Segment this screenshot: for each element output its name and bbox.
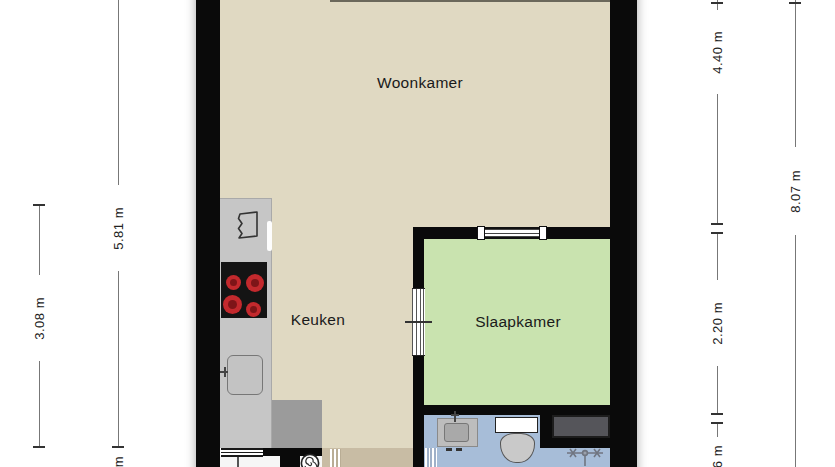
wall-bedroom-bottom	[413, 405, 610, 415]
shower-tap-icon	[563, 446, 607, 467]
floorplan-canvas: Woonkamer Keuken Slaapkamer 5.81 m 3.08 …	[0, 0, 835, 467]
dimension-line-bottom-right	[717, 423, 718, 437]
dimension-tick	[711, 422, 723, 424]
toilet-cistern-icon	[495, 417, 538, 433]
wall-right-outer	[610, 0, 637, 467]
dimension-tick	[711, 413, 723, 415]
window-endcap-icon	[539, 226, 547, 240]
extractor-hood-icon	[227, 209, 261, 241]
dimension-text: 6 m	[710, 445, 725, 467]
washbasin-handle	[446, 448, 452, 451]
dimension-tick	[789, 2, 801, 4]
washbasin-inner-basin	[444, 423, 469, 442]
wall-left-outer	[196, 0, 220, 467]
storage-unit	[552, 415, 610, 438]
dimension-text: 3.08 m	[32, 297, 47, 340]
dimension-tick	[33, 204, 45, 206]
dimension-text: 4.40 m	[710, 31, 725, 74]
wall-wc-stub	[280, 448, 300, 467]
dimension-label-3-08: 3.08 m	[27, 275, 51, 361]
room-label-woonkamer: Woonkamer	[377, 74, 463, 92]
dimension-text: m	[111, 456, 126, 467]
bedroom-top-window-icon	[478, 227, 546, 239]
dimension-label-5-81: 5.81 m	[106, 185, 130, 271]
window-endcap-icon	[477, 226, 485, 240]
dimension-text: 8.07 m	[788, 170, 803, 213]
dimension-label-8-07: 8.07 m	[783, 147, 807, 235]
dimension-tick	[711, 223, 723, 225]
burner-icon	[246, 274, 264, 292]
kitchen-tap-icon-2	[224, 367, 226, 377]
tall-cabinet-block	[272, 400, 322, 448]
drain-spiral-icon	[300, 453, 320, 467]
wc-door-icon	[221, 448, 263, 457]
wc-door-swing-line	[237, 457, 239, 467]
top-cut-edge	[330, 0, 610, 2]
washbasin-handle	[456, 448, 462, 451]
burner-icon	[246, 302, 261, 317]
dimension-text: 5.81 m	[111, 207, 126, 250]
dimension-label-partial-left: m	[107, 452, 129, 467]
dimension-tick	[112, 446, 124, 448]
burner-icon	[226, 275, 241, 290]
cooktop-icon	[221, 262, 267, 318]
dimension-tick	[711, 2, 723, 4]
dimension-tick	[33, 446, 45, 448]
glazing-center-tick	[405, 321, 432, 323]
washbasin-tap-crossbar	[451, 414, 459, 416]
dimension-text: 2.20 m	[710, 302, 725, 345]
room-label-slaapkamer: Slaapkamer	[475, 313, 561, 331]
washbasin-tap-icon	[454, 411, 456, 422]
kitchen-sink-icon	[227, 355, 263, 395]
bathroom-door-icon	[425, 448, 437, 467]
dimension-label-2-20: 2.20 m	[705, 280, 729, 366]
counter-handle	[267, 221, 272, 251]
dimension-label-4-40: 4.40 m	[705, 10, 729, 94]
burner-icon	[223, 295, 242, 314]
wall-interior-vertical-upper	[413, 239, 424, 288]
dimension-label-partial-right: 6 m	[706, 442, 728, 467]
room-label-keuken: Keuken	[291, 311, 345, 329]
hall-door-jamb-icon	[330, 449, 341, 467]
dimension-tick	[711, 232, 723, 234]
